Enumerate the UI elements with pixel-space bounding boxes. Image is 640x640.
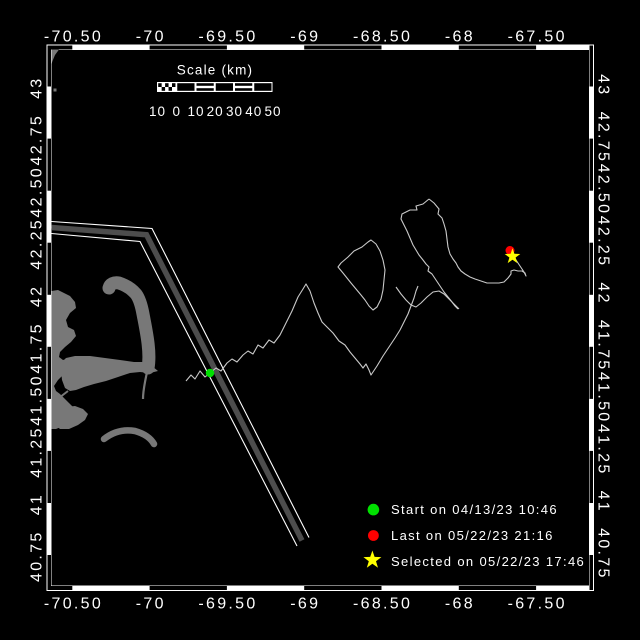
svg-text:10: 10 xyxy=(187,104,204,119)
svg-text:40: 40 xyxy=(245,104,262,119)
svg-text:-69.50: -69.50 xyxy=(198,29,257,46)
svg-text:40.75: 40.75 xyxy=(595,528,612,580)
svg-text:20: 20 xyxy=(207,104,224,119)
svg-text:42.50: 42.50 xyxy=(29,166,46,218)
svg-text:-70.50: -70.50 xyxy=(44,596,103,613)
svg-text:41.50: 41.50 xyxy=(595,372,612,424)
svg-text:-69.50: -69.50 xyxy=(198,596,257,613)
svg-text:41.75: 41.75 xyxy=(29,322,46,374)
svg-text:-69: -69 xyxy=(290,29,320,46)
svg-text:-69: -69 xyxy=(290,596,320,613)
svg-text:Start on 04/13/23 10:46: Start on 04/13/23 10:46 xyxy=(391,502,558,517)
svg-text:42: 42 xyxy=(595,282,612,304)
svg-text:42.25: 42.25 xyxy=(595,216,612,268)
svg-text:0: 0 xyxy=(173,104,182,119)
svg-text:41.50: 41.50 xyxy=(29,374,46,426)
svg-text:30: 30 xyxy=(226,104,243,119)
svg-text:40.75: 40.75 xyxy=(29,530,46,582)
svg-text:42: 42 xyxy=(29,285,46,307)
svg-text:-68: -68 xyxy=(445,29,475,46)
svg-text:42.75: 42.75 xyxy=(29,114,46,166)
svg-text:-68.50: -68.50 xyxy=(353,29,412,46)
svg-text:-68: -68 xyxy=(445,596,475,613)
svg-text:41.25: 41.25 xyxy=(29,426,46,478)
svg-text:-70: -70 xyxy=(136,29,166,46)
svg-text:50: 50 xyxy=(264,104,281,119)
svg-text:10: 10 xyxy=(149,104,166,119)
svg-text:42.75: 42.75 xyxy=(595,112,612,164)
svg-text:41: 41 xyxy=(29,493,46,515)
svg-text:43: 43 xyxy=(595,74,612,96)
svg-text:41.75: 41.75 xyxy=(595,320,612,372)
svg-text:-68.50: -68.50 xyxy=(353,596,412,613)
svg-text:41.25: 41.25 xyxy=(595,424,612,476)
svg-text:-67.50: -67.50 xyxy=(508,596,567,613)
svg-text:43: 43 xyxy=(29,76,46,98)
svg-text:Selected on 05/22/23 17:46: Selected on 05/22/23 17:46 xyxy=(391,554,585,569)
svg-text:42.25: 42.25 xyxy=(29,218,46,270)
svg-text:41: 41 xyxy=(595,491,612,513)
svg-text:-67.50: -67.50 xyxy=(508,29,567,46)
svg-text:Scale (km): Scale (km) xyxy=(177,63,254,78)
svg-text:-70.50: -70.50 xyxy=(44,29,103,46)
svg-text:-70: -70 xyxy=(136,596,166,613)
svg-text:Last on 05/22/23 21:16: Last on 05/22/23 21:16 xyxy=(391,528,554,543)
svg-text:42.50: 42.50 xyxy=(595,164,612,216)
